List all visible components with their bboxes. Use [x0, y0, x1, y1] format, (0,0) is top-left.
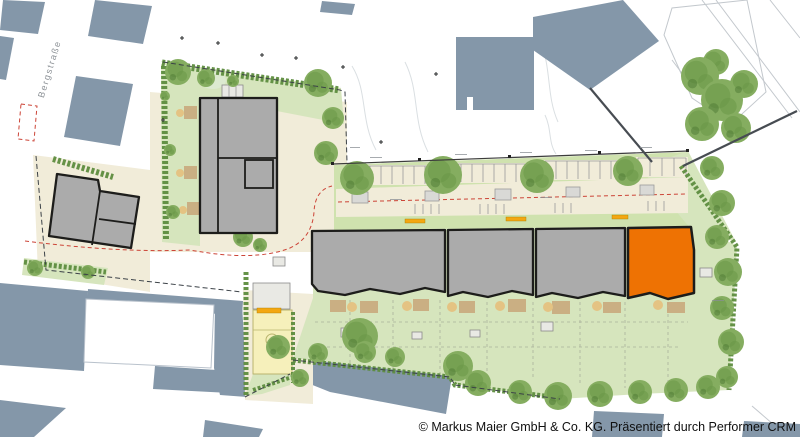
courtyard-footprint: [84, 299, 214, 368]
carports: [253, 283, 290, 309]
row-unit-3[interactable]: [536, 228, 625, 298]
row-unit-2[interactable]: [448, 229, 533, 297]
building-central[interactable]: [200, 98, 277, 233]
copyright-notice: © Markus Maier GmbH & Co. KG. Präsentier…: [419, 420, 796, 434]
row-unit-1[interactable]: [312, 230, 445, 295]
retaining-wall-west: [590, 88, 652, 162]
street-parking-outline: [18, 104, 37, 141]
site-plan: Bergstraße © Markus Maier GmbH & Co. KG.…: [0, 0, 800, 437]
highlighted-unit[interactable]: [628, 227, 694, 299]
site-plan-canvas: [0, 0, 800, 437]
